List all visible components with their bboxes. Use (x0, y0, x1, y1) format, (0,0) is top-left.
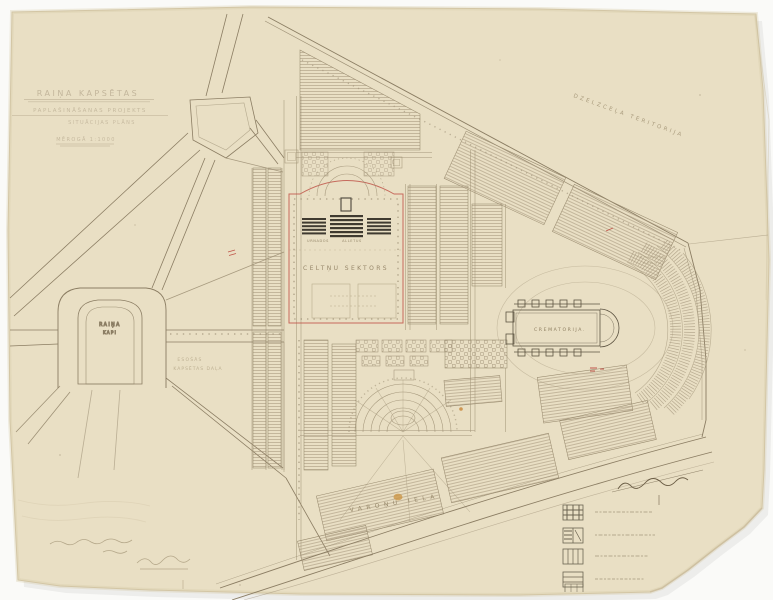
burial-plot-section (253, 168, 266, 326)
orange-dot (459, 407, 463, 411)
orange-stain (394, 494, 403, 501)
burial-plot-section (364, 152, 394, 176)
burial-plot-section (444, 376, 502, 407)
burial-plot-section (268, 332, 281, 468)
forecourt-chapel (341, 198, 351, 211)
title-line-2: PAPLAŠINĀŠANAS PROJEKTS (33, 107, 147, 114)
burial-plot-section (332, 344, 356, 466)
crematoria-label: CREMATORIJA. (534, 327, 586, 333)
title-line-3: SITUĀCIJAS PLĀNS (68, 119, 136, 126)
sector-small-label-left: URNADOS (307, 239, 329, 243)
sector-label: CELTŅU SEKTORS (303, 265, 389, 272)
loop-label-line2: KAPI (103, 330, 117, 335)
loop-label-line1: RAIŅA (99, 322, 121, 328)
title-line-4: MĒROGĀ 1:1000 (56, 136, 116, 143)
burial-plot-section (440, 186, 468, 324)
burial-plot-section (445, 340, 507, 368)
burial-plot-section (302, 152, 328, 176)
scanned-site-plan: RAIŅA KAPSĒTAS PAPLAŠINĀŠANAS PROJEKTS S… (0, 0, 773, 600)
burial-plot-section (472, 204, 502, 286)
burial-plot-section (408, 186, 436, 324)
burial-plot-section (268, 168, 281, 326)
burial-plot-section (253, 332, 266, 468)
existing-line-2: KAPSĒTAS DAĻA (173, 365, 222, 372)
plan-canvas: RAIŅA KAPSĒTAS PAPLAŠINĀŠANAS PROJEKTS S… (0, 0, 773, 600)
sector-small-label-right: ALLETUS (342, 239, 362, 243)
existing-line-1: ESOŠĀS (177, 356, 202, 363)
title-line-1: RAIŅA KAPSĒTAS (37, 88, 139, 99)
burial-plot-section (304, 340, 328, 470)
